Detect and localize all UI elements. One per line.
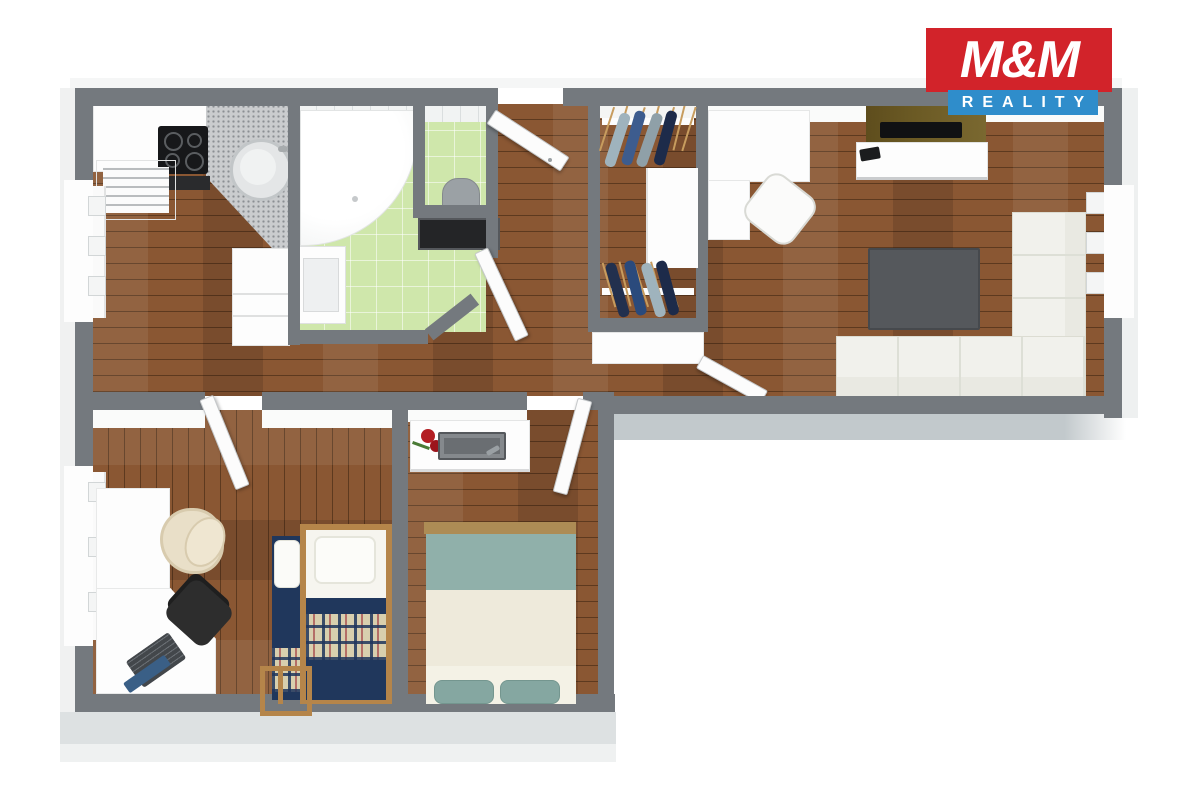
bed1-side-pillow <box>274 540 300 588</box>
bed2-blanket-teal <box>426 534 576 590</box>
entrance-door-handle <box>548 158 552 162</box>
wall-wc-divider <box>413 104 425 205</box>
kitchen-window-bracket <box>88 236 106 256</box>
sofa-bottom-section <box>836 336 1086 398</box>
wall-bedroom2-right <box>598 392 614 694</box>
floorplan-render: M&M REALITY <box>0 0 1200 800</box>
kitchen-window-bracket <box>88 276 106 296</box>
wall-bedroom-divider <box>392 392 408 694</box>
bed1-plaid-band <box>306 614 386 660</box>
livingroom-desk <box>708 110 810 182</box>
cooktop-burner-2 <box>187 133 202 148</box>
bed1-wood-rail-bar <box>278 668 283 704</box>
wall-wardrobe-bottom <box>588 318 708 332</box>
kitchen-fridge-column <box>232 248 290 346</box>
bed2-duvet-cream <box>426 590 576 666</box>
wall-top-left-of-entrance <box>75 88 487 106</box>
tv-screen <box>880 122 962 138</box>
bed1-pillow <box>314 536 376 584</box>
bed1-wood-rail <box>260 666 312 716</box>
cooktop-burner-1 <box>164 132 183 151</box>
outer-band-livingroom <box>614 414 1126 440</box>
bedroom1-north-face-a <box>93 410 205 428</box>
outer-face-bottom-soft <box>60 744 616 762</box>
wall-bottom-livingroom <box>598 396 1122 414</box>
agency-logo-title: M&M <box>960 30 1078 90</box>
wall-bathroom-bottom <box>288 330 428 344</box>
kitchen-sink-basin <box>240 149 276 185</box>
bed2-pillow-left <box>434 680 494 704</box>
wall-bedrooms-top-a <box>93 392 205 410</box>
hall-sideboard <box>592 332 704 364</box>
outer-face-bottom <box>60 712 616 744</box>
bathtub-drain <box>352 196 358 202</box>
coffee-table <box>868 248 980 330</box>
bathroom-sink-basin <box>303 258 339 312</box>
agency-logo-banner: REALITY <box>948 90 1098 115</box>
wall-wardrobe-left <box>588 104 600 330</box>
wall-kitchen-bath-divider <box>288 88 300 345</box>
agency-logo-subtitle: REALITY <box>962 94 1093 112</box>
bed2-headrail <box>424 522 576 534</box>
agency-logo: M&M <box>926 28 1112 92</box>
bed2-pillow-right <box>500 680 560 704</box>
wardrobe-shelf-unit <box>646 168 698 268</box>
cooktop-burner-4 <box>185 152 204 171</box>
bedroom1-desk-upper <box>96 488 170 590</box>
rose-flower <box>421 429 435 443</box>
bedroom1-north-face-b <box>262 410 392 428</box>
livingroom-window <box>1104 185 1134 318</box>
kitchen-faucet <box>278 146 288 152</box>
kitchen-window-bracket <box>88 196 106 216</box>
sofa-right-section <box>1012 212 1086 342</box>
kitchen-vent-appliance <box>96 160 176 220</box>
